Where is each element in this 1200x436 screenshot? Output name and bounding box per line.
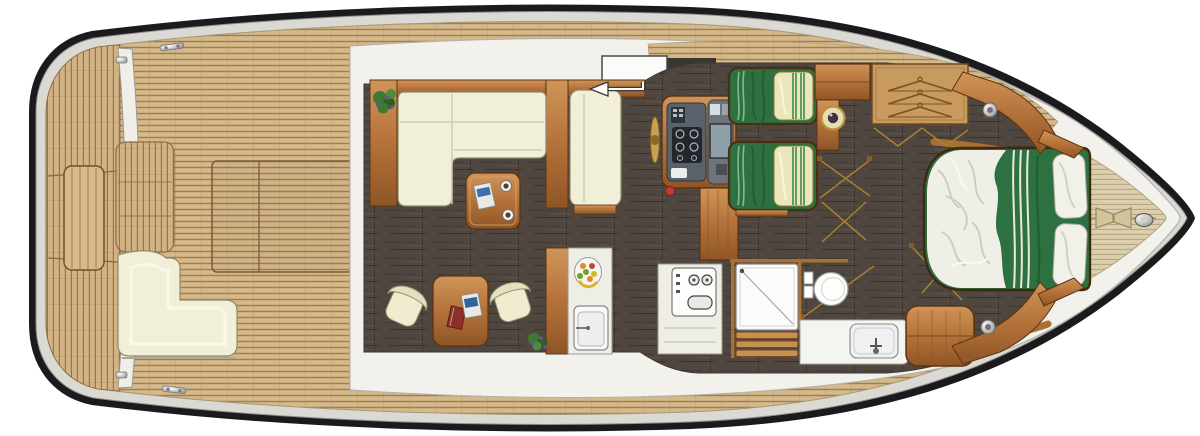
stove	[658, 264, 722, 354]
double-bed	[924, 148, 1090, 290]
bed-base	[736, 210, 788, 216]
coffee-table	[466, 173, 520, 229]
engine-hatch	[212, 161, 356, 272]
fruit-bowl	[575, 258, 602, 287]
transom-hinge	[116, 372, 127, 378]
floor-plan-canvas	[0, 0, 1200, 436]
pillow	[1052, 153, 1087, 219]
shower	[736, 264, 798, 330]
bench-side-trim	[546, 80, 568, 208]
vanity	[800, 320, 908, 364]
cockpit-bench-back	[116, 142, 174, 252]
transom-hinge	[116, 57, 127, 63]
chartplotter-screen	[710, 124, 731, 158]
bow-cleat-top	[1140, 216, 1148, 221]
throttle-knob	[666, 187, 675, 196]
twin-bed-upper	[729, 68, 817, 124]
shower-drain	[740, 269, 744, 273]
yacht-floor-plan	[0, 0, 1200, 436]
galley-sink	[574, 306, 608, 350]
chart-tray	[671, 168, 687, 178]
stern-locker	[64, 166, 104, 270]
twin-bed-lower	[729, 142, 817, 216]
wall	[731, 262, 735, 358]
book-blue	[461, 293, 482, 319]
wheel-hub	[650, 135, 660, 145]
pillow	[1052, 223, 1087, 287]
galley-counter-wood	[546, 248, 570, 354]
dining-table	[433, 276, 488, 346]
burner-oval	[688, 296, 712, 309]
navigator-bench	[570, 90, 621, 214]
wall	[730, 259, 848, 263]
companionway-steps	[736, 332, 798, 357]
faucet	[586, 326, 590, 330]
